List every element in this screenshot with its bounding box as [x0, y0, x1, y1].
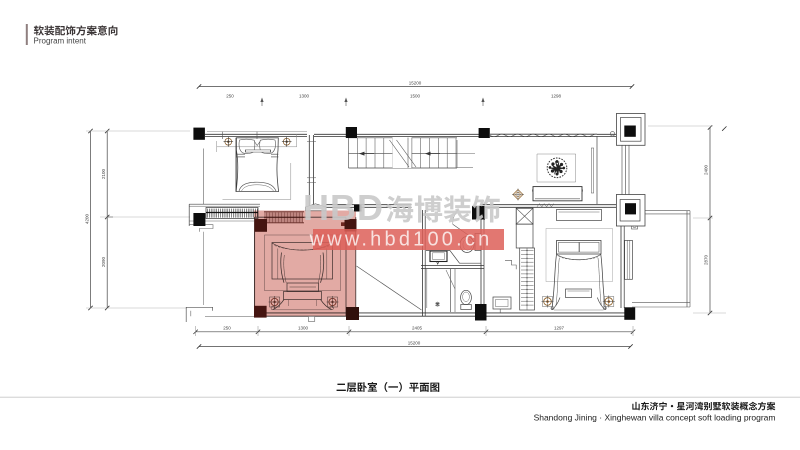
svg-text:2100: 2100	[101, 168, 106, 179]
svg-text:1500: 1500	[410, 94, 421, 99]
svg-text:Program intent: Program intent	[34, 37, 87, 46]
svg-text:4200: 4200	[85, 213, 90, 224]
svg-text:HBD: HBD	[303, 187, 384, 228]
svg-text:2090: 2090	[101, 256, 106, 267]
svg-text:2405: 2405	[412, 326, 423, 331]
svg-text:2870: 2870	[704, 254, 709, 265]
svg-text:1300: 1300	[299, 94, 310, 99]
svg-text:Shandong Jining · Xinghewan vi: Shandong Jining · Xinghewan villa concep…	[534, 413, 776, 423]
svg-text:www.hbd100.cn: www.hbd100.cn	[309, 229, 493, 251]
svg-text:250: 250	[223, 326, 231, 331]
svg-text:2400: 2400	[704, 164, 709, 175]
svg-text:15200: 15200	[408, 341, 421, 346]
svg-text:250: 250	[226, 94, 234, 99]
svg-text:1300: 1300	[298, 326, 309, 331]
svg-text:1297: 1297	[554, 326, 565, 331]
svg-text:1298: 1298	[551, 94, 562, 99]
svg-text:15200: 15200	[409, 81, 422, 86]
